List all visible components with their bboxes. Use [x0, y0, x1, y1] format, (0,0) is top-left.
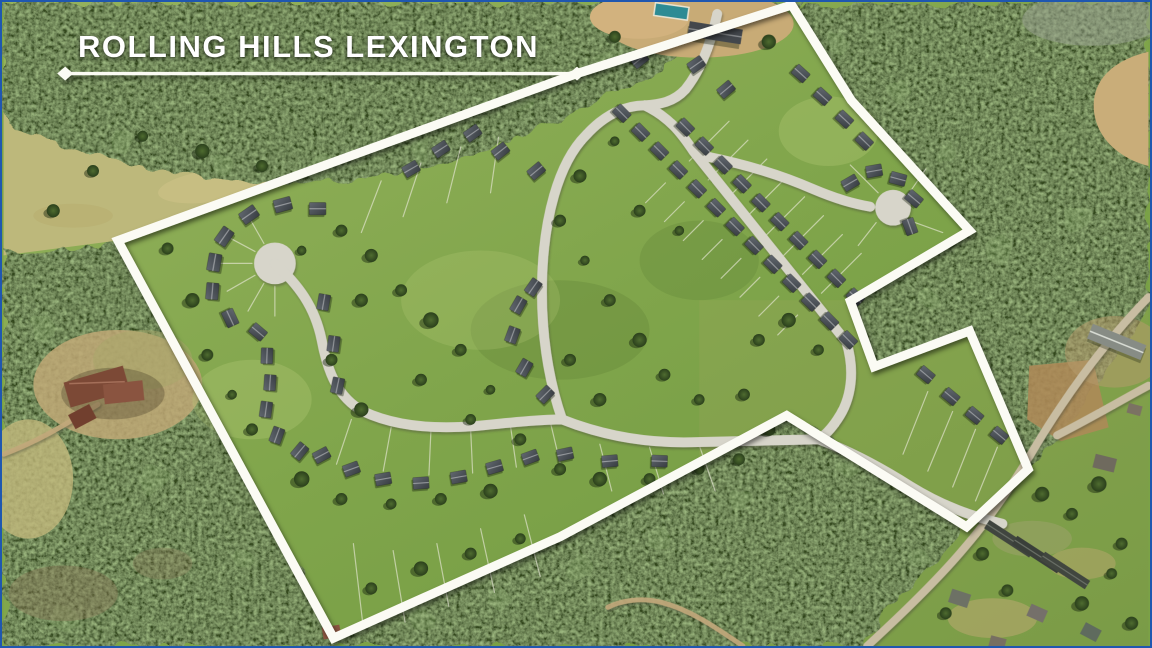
aerial-scene: [2, 2, 1150, 646]
aerial-video-frame: ROLLING HILLS LEXINGTON: [0, 0, 1152, 648]
site-title: ROLLING HILLS LEXINGTON: [78, 29, 539, 65]
